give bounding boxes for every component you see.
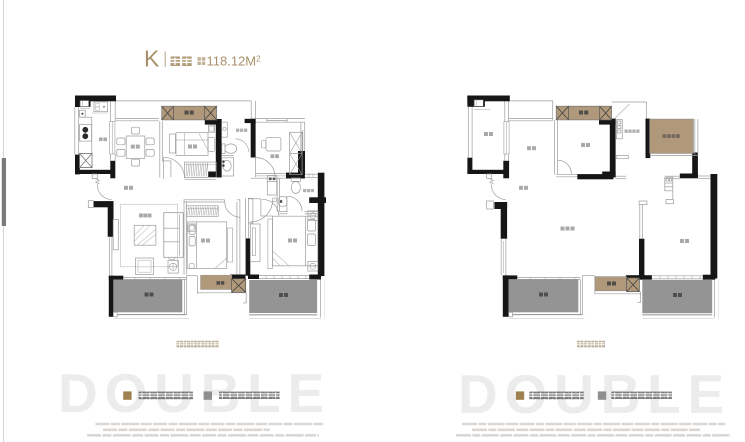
svg-text:DOUBLE: DOUBLE	[458, 363, 731, 425]
svg-text:118.12M2: 118.12M2	[207, 54, 262, 69]
svg-text:K: K	[144, 46, 160, 72]
svg-text:DOUBLE: DOUBLE	[58, 362, 331, 424]
